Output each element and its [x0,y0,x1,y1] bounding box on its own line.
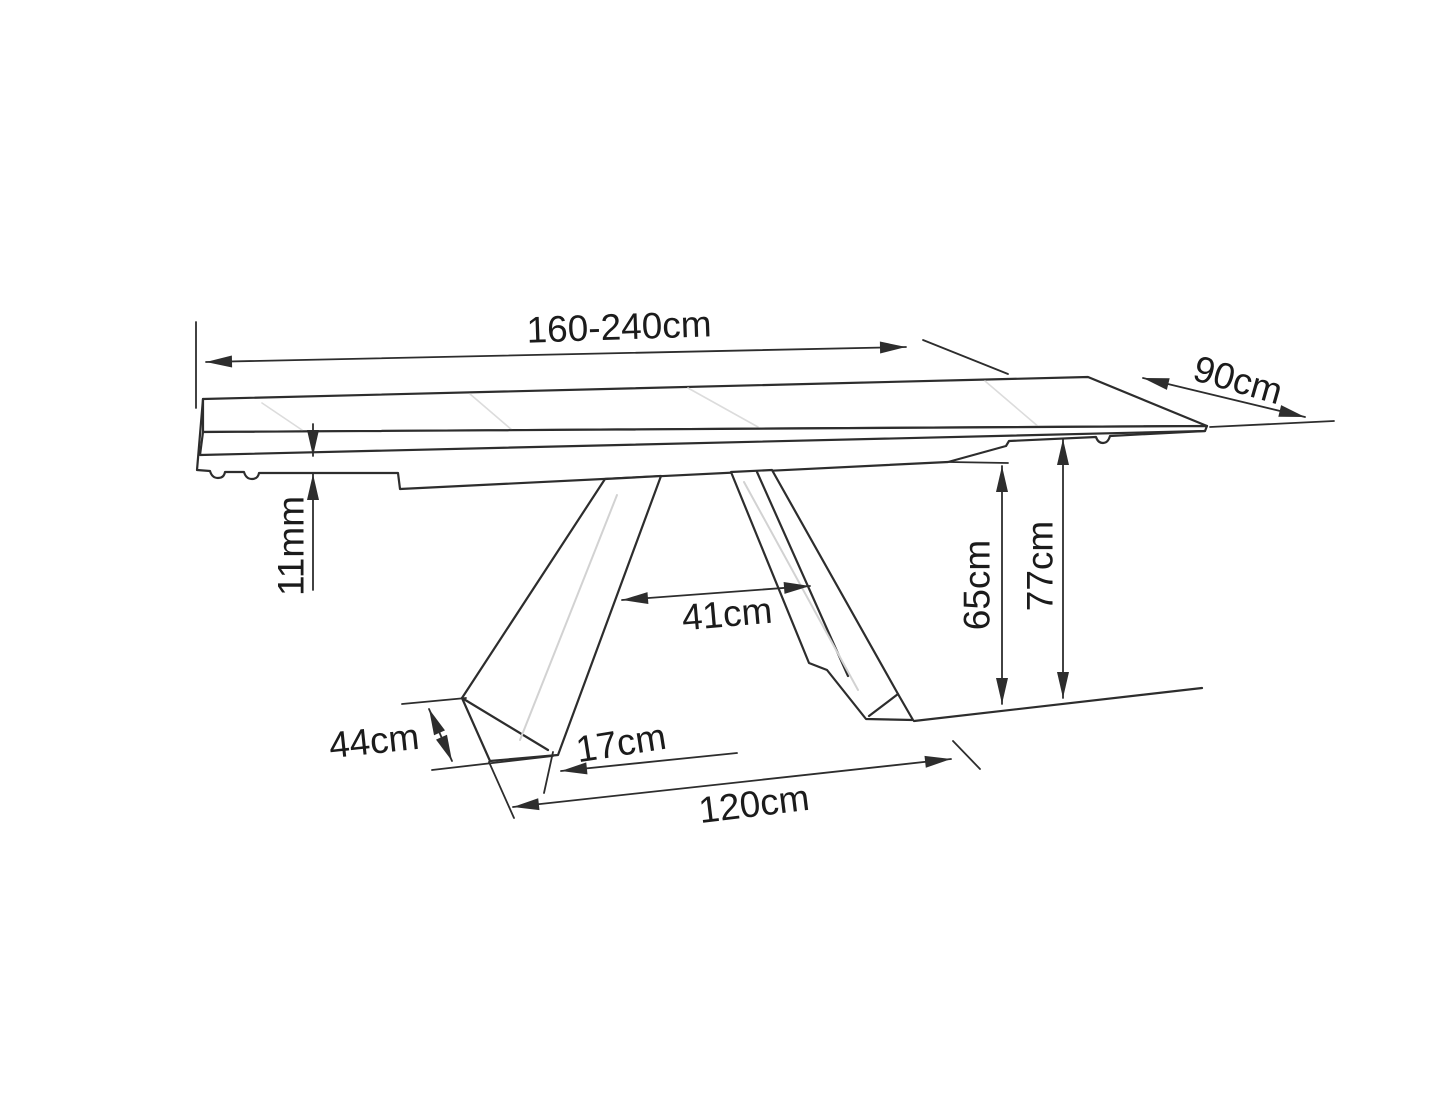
left-leg [462,476,661,761]
tabletop-top-face [203,377,1207,432]
dim-base-length: 120cm [489,741,980,831]
dim-leg-gap-label: 41cm [680,590,774,639]
dim-depth-ext [1210,421,1334,427]
dim-thickness-label: 11mm [271,496,312,596]
dim-44-label: 44cm [327,716,421,766]
dim-65-ext [949,462,1008,463]
dimension-drawing-canvas: 160-240cm 90cm 11mm 41cm 65cm 77cm 44cm [0,0,1445,1105]
dim-length-label: 160-240cm [526,303,712,350]
dim-underside-clearance: 65cm [949,462,1008,704]
dim-44-ext-top [402,698,466,704]
dim-77-label: 77cm [1020,521,1061,611]
tabletop-front-face [200,426,1207,455]
dim-foot-length: 17cm [544,716,737,793]
dim-total-height: 77cm [1020,439,1064,698]
dim-65-label: 65cm [957,540,998,630]
table-dimension-diagram: 160-240cm 90cm 11mm 41cm 65cm 77cm 44cm [0,0,1445,1105]
dim-120-ext-right [953,741,980,769]
dim-17-ext [544,752,553,793]
dim-length-ext-right [923,340,1008,374]
dim-44-line [429,709,452,761]
dim-depth-label: 90cm [1189,348,1287,412]
floor-reference-line [914,688,1202,721]
dim-120-ext-left [489,762,514,818]
